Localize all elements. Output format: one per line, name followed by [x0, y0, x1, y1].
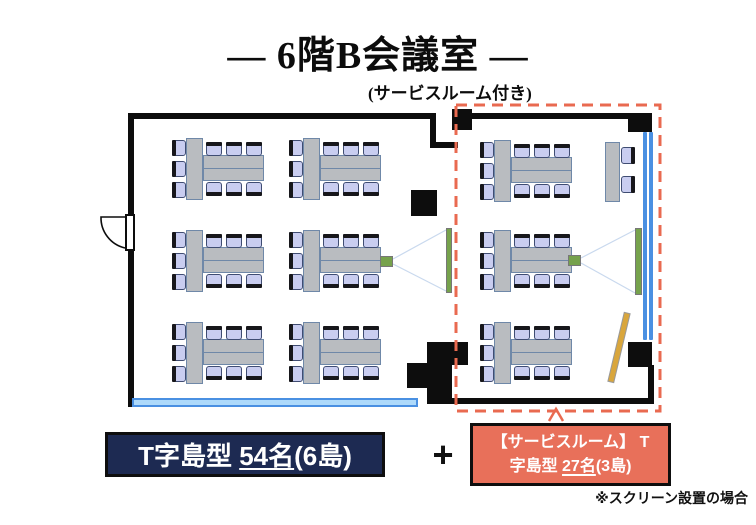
chair-back [343, 234, 359, 238]
chair [323, 366, 339, 379]
head-table [303, 138, 320, 200]
chair-back [172, 345, 176, 361]
chair-back [534, 144, 550, 148]
chair [554, 327, 570, 340]
chair-back [323, 326, 339, 330]
chair [246, 366, 262, 379]
plus-sign: + [421, 434, 465, 476]
chair [290, 274, 303, 290]
chair [290, 140, 303, 156]
chair-back [246, 192, 262, 196]
table-island [290, 230, 381, 292]
main-capacity-count: 54名 [239, 436, 294, 473]
long-table [320, 339, 381, 365]
chair [206, 143, 222, 156]
chair [481, 184, 494, 200]
chair-back [534, 326, 550, 330]
chair [343, 182, 359, 195]
chair-back [514, 326, 530, 330]
chair [246, 143, 262, 156]
chair-back [289, 182, 293, 198]
chair [173, 232, 186, 248]
chair [323, 327, 339, 340]
chair-back [534, 234, 550, 238]
table-split-line [321, 352, 380, 353]
chair [173, 366, 186, 382]
table-island [173, 138, 264, 200]
chair-back [514, 144, 530, 148]
chair-back [206, 142, 222, 146]
chair-back [363, 376, 379, 380]
chair-back [363, 326, 379, 330]
chair [481, 274, 494, 290]
chair-back [289, 324, 293, 340]
long-table [203, 339, 264, 365]
chair [534, 235, 550, 248]
chair [481, 142, 494, 158]
chair-back [172, 366, 176, 382]
chair [363, 274, 379, 287]
chair [206, 182, 222, 195]
chair-back [289, 274, 293, 290]
chair [173, 274, 186, 290]
projector-icon [380, 256, 393, 267]
chair-back [226, 192, 242, 196]
table-split-line [204, 168, 263, 169]
chair [481, 366, 494, 382]
chair-back [172, 232, 176, 248]
chair-back [323, 142, 339, 146]
chair [246, 327, 262, 340]
chair-back [206, 192, 222, 196]
chair-back [172, 253, 176, 269]
chair [290, 182, 303, 198]
chair-back [514, 194, 530, 198]
head-table [494, 140, 511, 202]
chair [534, 184, 550, 197]
chair [226, 274, 242, 287]
chair [226, 327, 242, 340]
chair-back [554, 234, 570, 238]
table-island [290, 322, 381, 384]
chair-back [226, 234, 242, 238]
chair [514, 145, 530, 158]
chair [323, 274, 339, 287]
service-capacity-badge: 【サービスルーム】 T 字島型 27名(3島) [470, 423, 671, 486]
table-split-line [512, 260, 571, 261]
projector-icon [568, 255, 581, 266]
chair-back [226, 326, 242, 330]
chair-back [172, 182, 176, 198]
chair [173, 345, 186, 361]
chair-back [514, 284, 530, 288]
chair-back [554, 284, 570, 288]
chair-back [363, 234, 379, 238]
main-capacity-prefix: T字島型 [138, 436, 239, 473]
long-table [203, 155, 264, 181]
head-table [303, 230, 320, 292]
chair [481, 232, 494, 248]
long-table [511, 247, 572, 273]
chair [534, 145, 550, 158]
chair [290, 253, 303, 269]
head-table [186, 230, 203, 292]
chair-back [206, 284, 222, 288]
chair [514, 235, 530, 248]
chair [514, 366, 530, 379]
chair-back [289, 345, 293, 361]
chair-back [480, 142, 484, 158]
chair-back [323, 192, 339, 196]
service-capacity-count: 27名 [562, 458, 596, 475]
chair [226, 143, 242, 156]
chair [481, 324, 494, 340]
screen-bar-icon [446, 228, 452, 293]
chair [246, 235, 262, 248]
chair [481, 163, 494, 179]
chair [246, 274, 262, 287]
screen-bar-icon [635, 228, 642, 295]
chair [206, 274, 222, 287]
table-island [605, 142, 635, 204]
chair-back [246, 376, 262, 380]
chair [323, 182, 339, 195]
service-capacity-line1: 【サービスルーム】 T [492, 431, 650, 455]
chair-back [480, 163, 484, 179]
table-split-line [512, 352, 571, 353]
long-table [203, 247, 264, 273]
head-table [494, 322, 511, 384]
chair-back [514, 376, 530, 380]
chair-back [363, 142, 379, 146]
chair [173, 161, 186, 177]
chair-back [343, 142, 359, 146]
head-table [494, 230, 511, 292]
chair-back [323, 284, 339, 288]
chair [343, 274, 359, 287]
chair-back [172, 140, 176, 156]
chair [554, 366, 570, 379]
chair [290, 161, 303, 177]
chair-back [226, 142, 242, 146]
chair [173, 253, 186, 269]
table-island [481, 322, 572, 384]
chair [554, 274, 570, 287]
chair-back [480, 184, 484, 200]
chair-back [534, 376, 550, 380]
table-island [481, 230, 572, 292]
chair-back [206, 326, 222, 330]
chair [363, 327, 379, 340]
chair [343, 143, 359, 156]
chair [226, 182, 242, 195]
chair-back [246, 234, 262, 238]
chair-back [289, 161, 293, 177]
chair-back [289, 253, 293, 269]
chair [554, 235, 570, 248]
chair-back [172, 324, 176, 340]
chair [481, 253, 494, 269]
side-table [605, 142, 620, 202]
chair-back [289, 366, 293, 382]
service-capacity-line2: 字島型 27名(3島) [510, 455, 632, 479]
chair [246, 182, 262, 195]
chair [290, 345, 303, 361]
chair-back [343, 192, 359, 196]
chair-back [480, 232, 484, 248]
chair [290, 232, 303, 248]
chair [226, 366, 242, 379]
chair-back [554, 144, 570, 148]
table-split-line [204, 260, 263, 261]
chair [534, 327, 550, 340]
table-island [481, 140, 572, 202]
chair-back [172, 161, 176, 177]
long-table [320, 155, 381, 181]
pillar [411, 190, 437, 216]
chair-back [363, 192, 379, 196]
table-split-line [321, 168, 380, 169]
chair [173, 182, 186, 198]
chair-back [246, 142, 262, 146]
main-capacity-suffix: (6島) [294, 436, 352, 473]
chair [554, 145, 570, 158]
chair-back [323, 376, 339, 380]
chair-back [631, 176, 635, 193]
chair-back [480, 366, 484, 382]
chair-back [206, 376, 222, 380]
chair-back [363, 284, 379, 288]
chair-back [226, 284, 242, 288]
chair-back [343, 376, 359, 380]
chair-back [480, 324, 484, 340]
chair-back [323, 234, 339, 238]
chair-back [534, 194, 550, 198]
meeting-room-diagram: ― 6階B会議室 ― (サービスルーム付き) T字島型 54名(6島) + 【サ… [0, 0, 756, 525]
table-island [173, 322, 264, 384]
chair-back [534, 284, 550, 288]
chair-back [343, 326, 359, 330]
chair-back [246, 326, 262, 330]
chair-back [480, 345, 484, 361]
head-table [186, 138, 203, 200]
long-table [511, 157, 572, 183]
chair [343, 366, 359, 379]
chair [343, 235, 359, 248]
chair-back [554, 194, 570, 198]
chair [534, 366, 550, 379]
chair [514, 327, 530, 340]
chair [363, 182, 379, 195]
chair [323, 235, 339, 248]
chair-back [343, 284, 359, 288]
table-island [173, 230, 264, 292]
chair [206, 235, 222, 248]
chair-back [206, 234, 222, 238]
chair [481, 345, 494, 361]
chair-back [480, 253, 484, 269]
chair [343, 327, 359, 340]
chair [206, 327, 222, 340]
long-table [511, 339, 572, 365]
chair-back [514, 234, 530, 238]
long-table [320, 247, 381, 273]
chair [323, 143, 339, 156]
chair-back [289, 140, 293, 156]
chair [363, 143, 379, 156]
chair [554, 184, 570, 197]
chair [173, 140, 186, 156]
table-split-line [512, 170, 571, 171]
chair [290, 366, 303, 382]
head-table [186, 322, 203, 384]
head-table [303, 322, 320, 384]
chair-back [226, 376, 242, 380]
chair [363, 366, 379, 379]
chair [534, 274, 550, 287]
main-capacity-badge: T字島型 54名(6島) [105, 432, 385, 477]
chair-back [631, 147, 635, 164]
chair [226, 235, 242, 248]
chair-back [554, 326, 570, 330]
chair-back [172, 274, 176, 290]
chair [621, 176, 634, 193]
chair-back [554, 376, 570, 380]
chair [206, 366, 222, 379]
table-split-line [321, 260, 380, 261]
chair [621, 147, 634, 164]
chair-back [289, 232, 293, 248]
chair [363, 235, 379, 248]
table-island [290, 138, 381, 200]
chair-back [480, 274, 484, 290]
chair-back [246, 284, 262, 288]
chair [514, 274, 530, 287]
screen-note: ※スクリーン設置の場合 [595, 488, 748, 508]
chair [514, 184, 530, 197]
chair [173, 324, 186, 340]
chair [290, 324, 303, 340]
table-split-line [204, 352, 263, 353]
